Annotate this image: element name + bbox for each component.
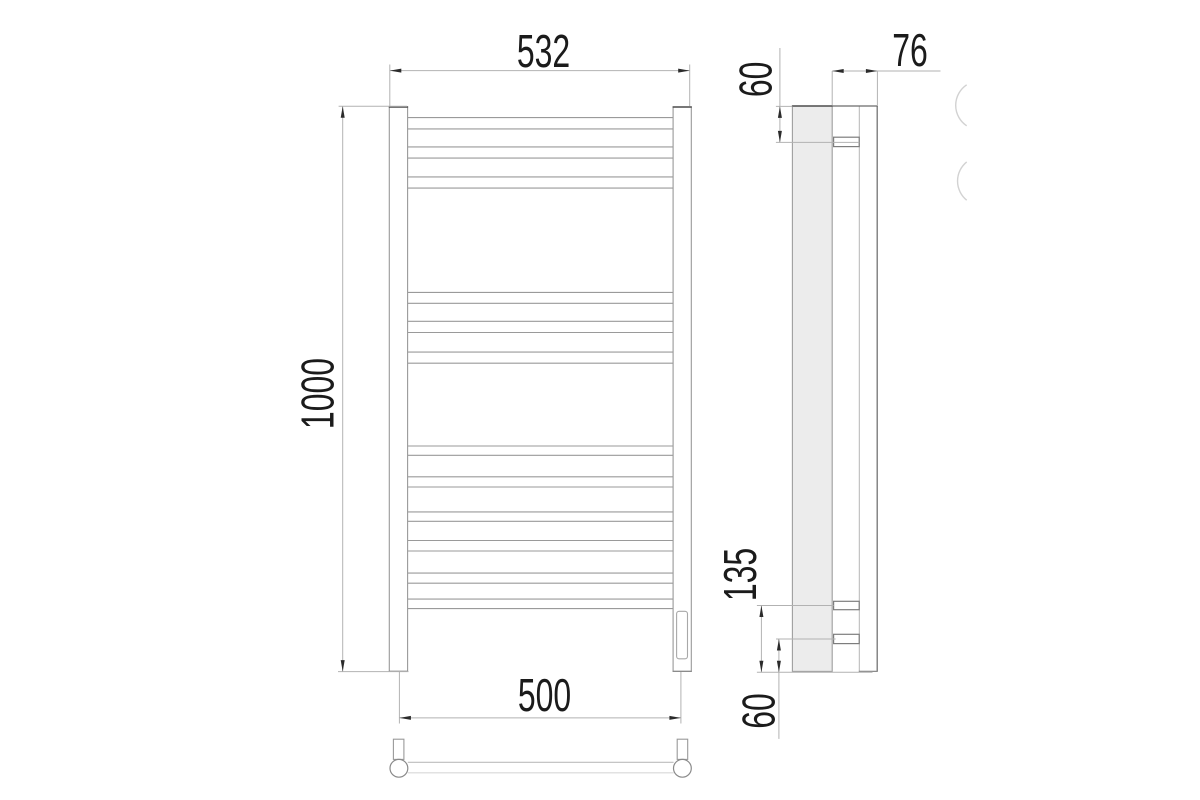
svg-text:60: 60 [734,693,785,729]
svg-text:60: 60 [731,62,782,98]
svg-text:135: 135 [715,548,766,601]
svg-text:532: 532 [517,26,570,77]
svg-text:500: 500 [518,670,571,721]
svg-text:1000: 1000 [293,358,344,429]
svg-text:76: 76 [892,25,928,76]
